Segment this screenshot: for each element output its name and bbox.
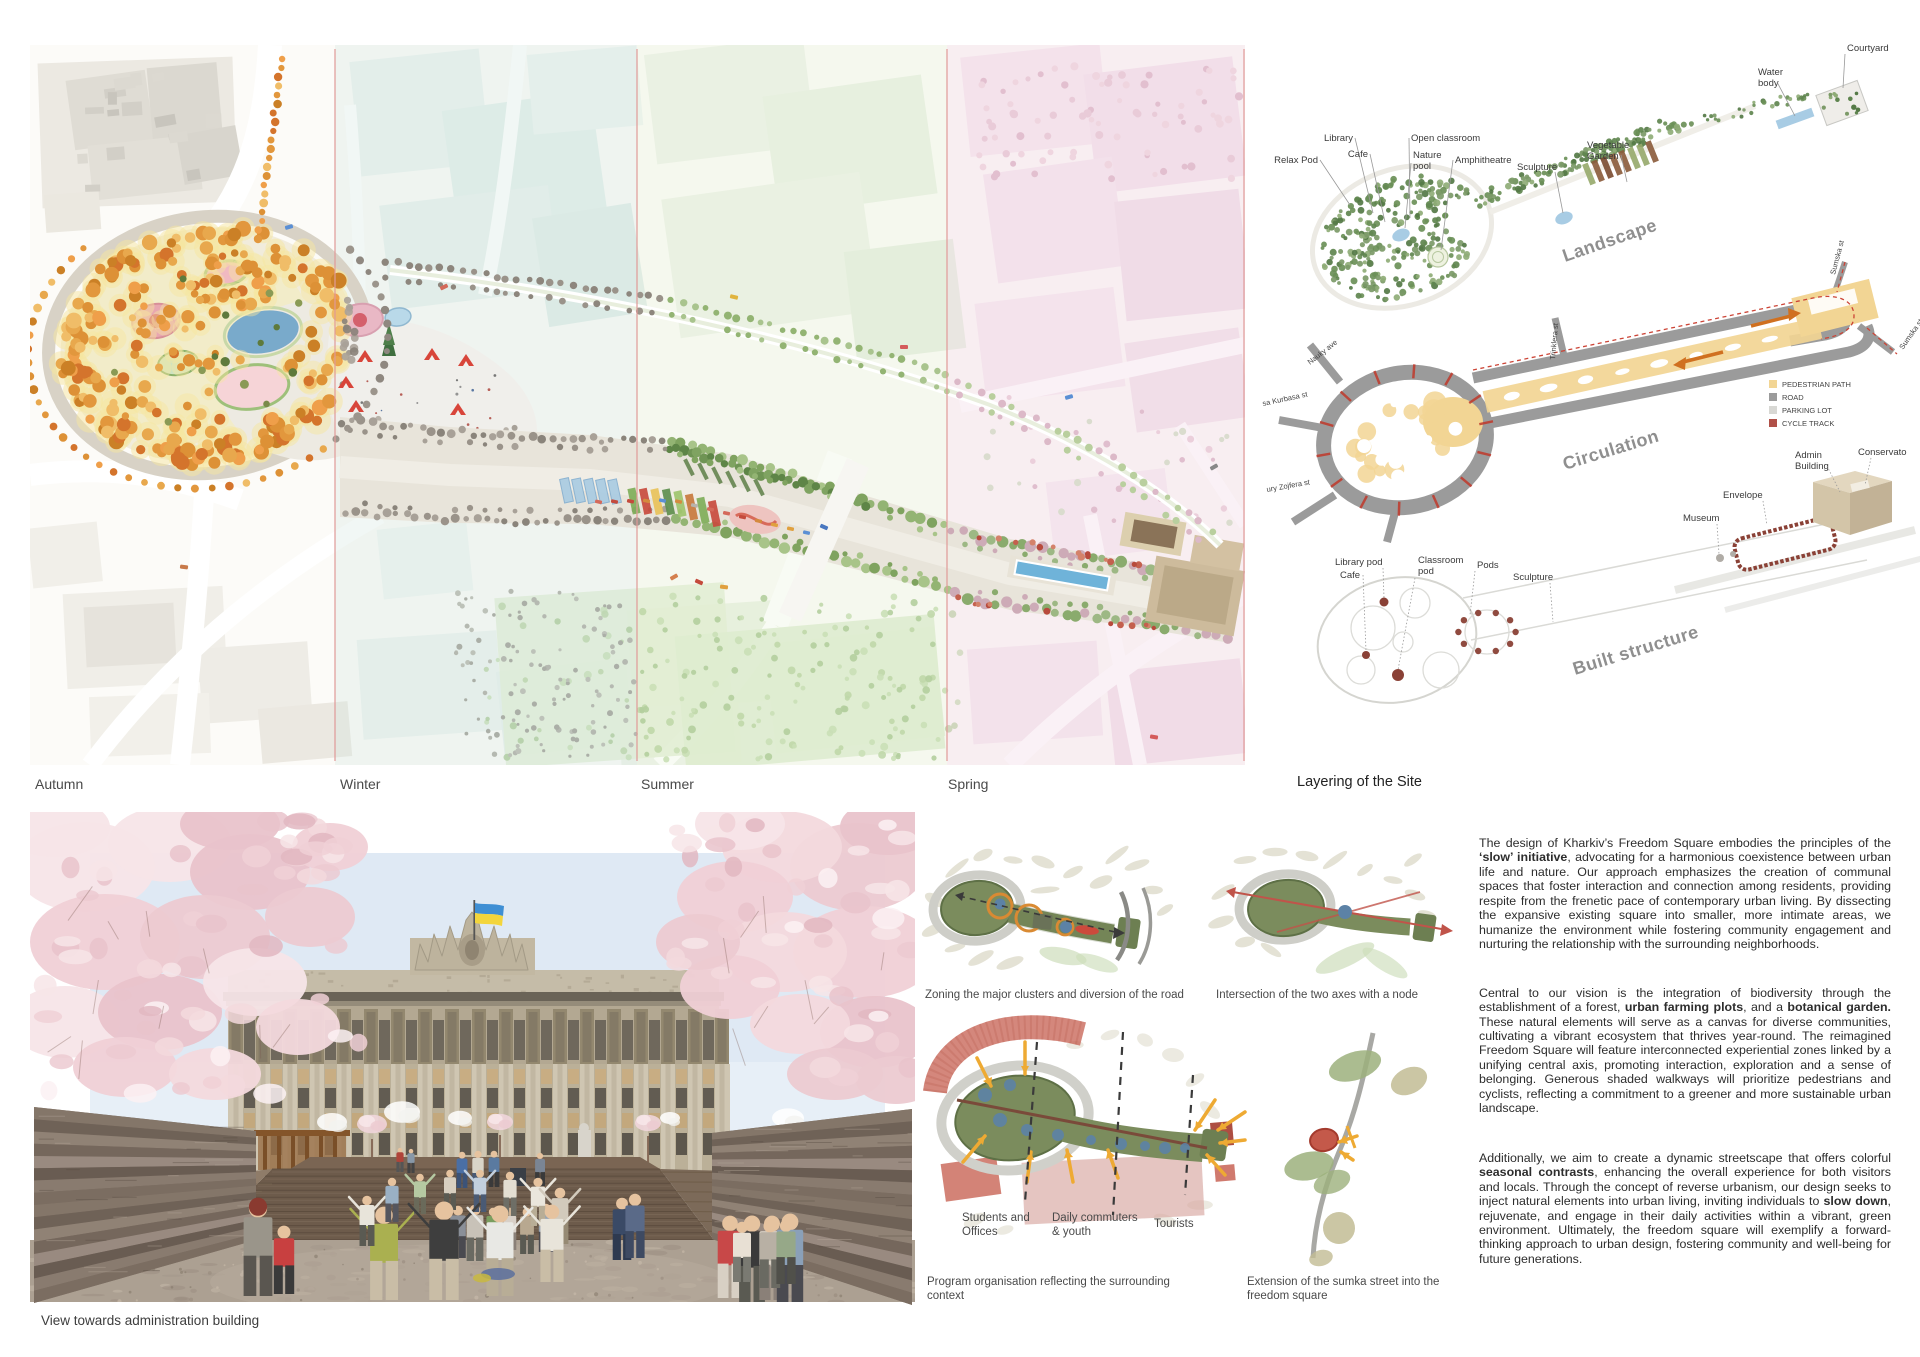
svg-text:Garden: Garden	[1587, 151, 1619, 162]
svg-text:CYCLE TRACK: CYCLE TRACK	[1782, 419, 1834, 428]
svg-text:PARKING LOT: PARKING LOT	[1782, 406, 1832, 415]
svg-text:Nature: Nature	[1413, 150, 1442, 161]
svg-text:Library: Library	[1324, 133, 1353, 144]
svg-text:Cafe: Cafe	[1340, 570, 1360, 581]
svg-text:Vegetable: Vegetable	[1587, 140, 1629, 151]
svg-text:Circulation: Circulation	[1560, 426, 1661, 474]
svg-text:Museum: Museum	[1683, 513, 1720, 524]
svg-text:PEDESTRIAN PATH: PEDESTRIAN PATH	[1782, 380, 1851, 389]
svg-text:Library pod: Library pod	[1335, 557, 1383, 568]
svg-text:Amphitheatre: Amphitheatre	[1455, 155, 1512, 166]
svg-text:ury Zojfera st: ury Zojfera st	[1266, 477, 1312, 494]
svg-text:Relax Pod: Relax Pod	[1274, 155, 1318, 166]
svg-text:Sculpture: Sculpture	[1517, 162, 1557, 173]
svg-text:Landscape: Landscape	[1560, 215, 1660, 266]
svg-text:pool: pool	[1413, 161, 1431, 172]
svg-text:ROAD: ROAD	[1782, 393, 1804, 402]
svg-text:Admin: Admin	[1795, 450, 1822, 461]
svg-text:Envelope: Envelope	[1723, 490, 1763, 501]
svg-text:Conservato: Conservato	[1858, 447, 1907, 458]
svg-text:Built structure: Built structure	[1570, 622, 1701, 679]
svg-text:Courtyard: Courtyard	[1847, 43, 1889, 54]
svg-text:Sculpture: Sculpture	[1513, 572, 1553, 583]
svg-text:body: body	[1758, 78, 1779, 89]
svg-text:Pods: Pods	[1477, 560, 1499, 571]
svg-text:sa Kurbasa st: sa Kurbasa st	[1262, 389, 1310, 408]
svg-text:Building: Building	[1795, 461, 1829, 472]
svg-text:Open classroom: Open classroom	[1411, 133, 1480, 144]
svg-text:Classroom: Classroom	[1418, 555, 1463, 566]
svg-text:Cafe: Cafe	[1348, 149, 1368, 160]
svg-text:pod: pod	[1418, 566, 1434, 577]
svg-text:Water: Water	[1758, 67, 1783, 78]
svg-text:Sumska st: Sumska st	[1897, 317, 1920, 352]
